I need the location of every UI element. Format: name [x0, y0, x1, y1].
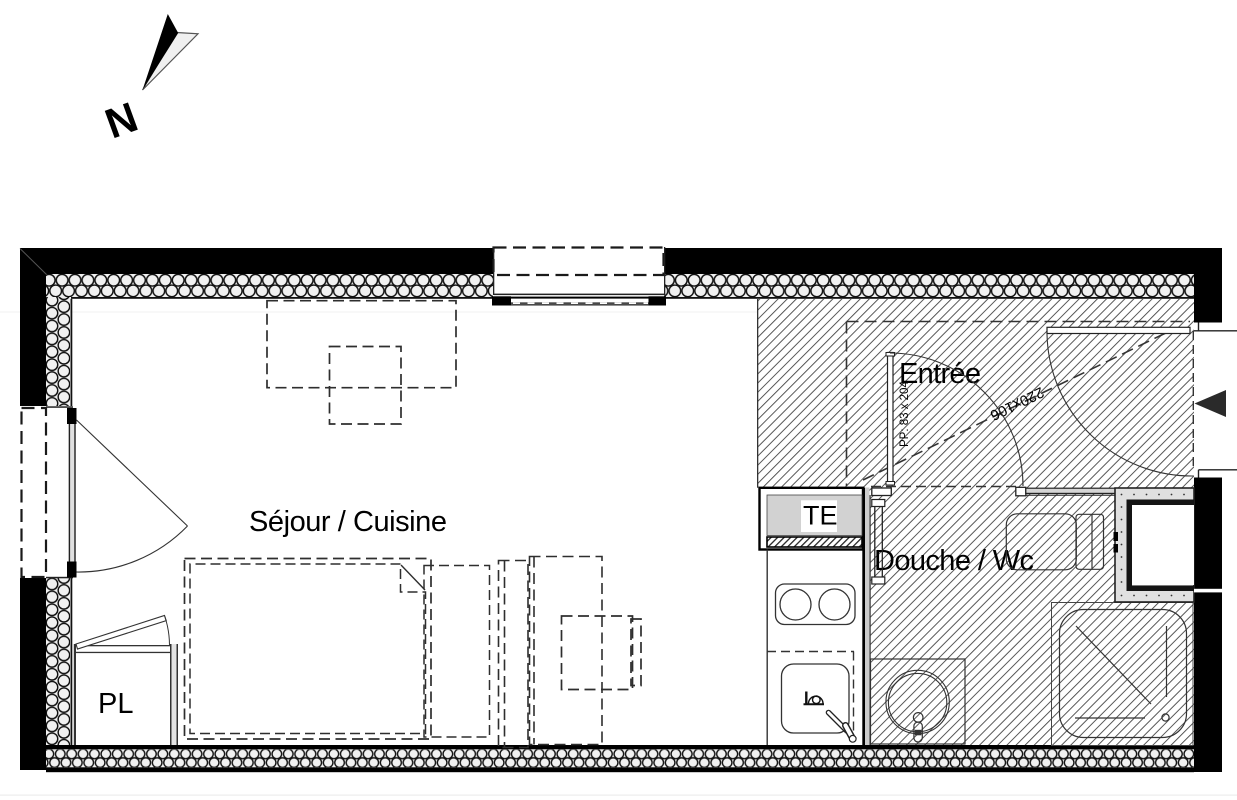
svg-text:Douche / Wc: Douche / Wc [874, 545, 1034, 577]
svg-text:TE: TE [803, 501, 838, 531]
svg-text:PP: 83 x 204: PP: 83 x 204 [899, 381, 911, 447]
svg-text:Séjour / Cuisine: Séjour / Cuisine [249, 506, 447, 538]
svg-text:PL: PL [98, 688, 133, 720]
